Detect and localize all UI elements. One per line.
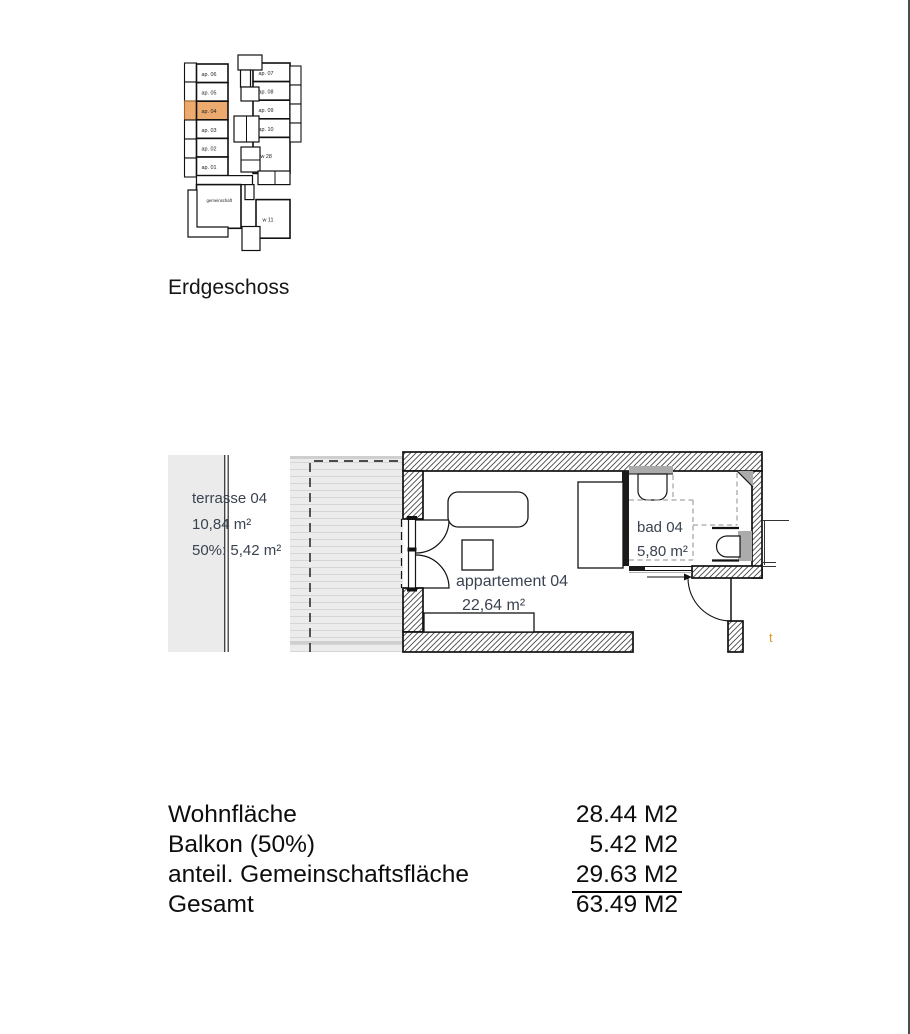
terrace-area-label: 10,84 m² bbox=[192, 516, 251, 533]
unit-label: w 11 bbox=[262, 218, 274, 224]
wall-corridor-strip bbox=[692, 566, 762, 578]
summary-row-gemeinschaftsflaeche: anteil. Gemeinschaftsfläche 29.63 M2 bbox=[168, 860, 678, 890]
sink bbox=[638, 474, 667, 500]
terrace-door-frame bbox=[409, 519, 416, 588]
unit-label: ap. 07 bbox=[259, 71, 274, 77]
summary-label: anteil. Gemeinschaftsfläche bbox=[168, 860, 469, 890]
wall-left-upper bbox=[403, 471, 423, 519]
summary-label: Balkon (50%) bbox=[168, 830, 315, 860]
terrace-edge-band bbox=[290, 456, 403, 459]
balcony-box bbox=[185, 158, 197, 177]
unit-label: ap. 09 bbox=[259, 108, 274, 114]
unit-label: ap. 01 bbox=[202, 165, 217, 171]
wall-bath-bottom-segment bbox=[629, 566, 645, 571]
balcony-box bbox=[185, 120, 197, 139]
site-map: ap. 06 ap. 05 ap. 04 ap. 03 ap. 02 ap. 0… bbox=[180, 50, 305, 260]
furniture-counter bbox=[424, 613, 534, 632]
core-top-box bbox=[238, 55, 262, 70]
unit-label: ap. 05 bbox=[202, 91, 217, 97]
bathroom-name-label: bad 04 bbox=[637, 519, 683, 536]
hall-band bbox=[197, 176, 253, 185]
wall-bottom bbox=[403, 632, 633, 652]
toilet bbox=[717, 536, 741, 557]
balcony-box bbox=[290, 104, 301, 123]
summary-value: 5.42 M2 bbox=[589, 830, 678, 860]
terrace-half-area-label: 50%: 5,42 m² bbox=[192, 542, 281, 559]
wall-top bbox=[403, 452, 762, 471]
balcony-box-highlight bbox=[185, 101, 197, 120]
floor-title: Erdgeschoss bbox=[168, 276, 289, 300]
furniture-couch bbox=[448, 492, 528, 527]
terrace-door-cap bbox=[407, 588, 417, 592]
unit-label: w 28 bbox=[260, 154, 272, 160]
terrace-door-handle bbox=[408, 548, 417, 552]
summary-row-balkon: Balkon (50%) 5.42 M2 bbox=[168, 830, 678, 860]
summary-value: 63.49 M2 bbox=[576, 890, 678, 920]
unit-label: ap. 02 bbox=[202, 146, 217, 152]
unit-label: gemeinschaft bbox=[207, 198, 233, 203]
unit-label-highlighted: ap. 04 bbox=[202, 109, 217, 115]
unit-label: ap. 10 bbox=[259, 127, 274, 133]
summary-value-underlined: 29.63 M2 bbox=[572, 860, 682, 893]
summary-label: Wohnfläche bbox=[168, 800, 297, 830]
summary-row-gesamt: Gesamt 63.49 M2 bbox=[168, 890, 678, 920]
unit-label: ap. 06 bbox=[202, 72, 217, 78]
furniture-table bbox=[462, 540, 493, 570]
bottom-protrusion bbox=[242, 227, 260, 251]
plan-sheet: ap. 06 ap. 05 ap. 04 ap. 03 ap. 02 ap. 0… bbox=[0, 0, 910, 1034]
unit-label: ap. 03 bbox=[202, 128, 217, 134]
door-swing-arc bbox=[416, 520, 449, 553]
terrace-deck bbox=[290, 456, 403, 652]
balcony-box bbox=[185, 63, 197, 82]
unit-label: ap. 08 bbox=[259, 90, 274, 96]
balcony-box bbox=[290, 85, 301, 104]
wall-left-lower bbox=[403, 588, 423, 632]
summary-label: Gesamt bbox=[168, 890, 254, 920]
core-box bbox=[241, 87, 259, 101]
wall-bath-right bbox=[752, 471, 762, 578]
wall-bottom-right-chunk bbox=[728, 621, 743, 652]
area-summary-table: Wohnfläche 28.44 M2 Balkon (50%) 5.42 M2… bbox=[168, 800, 678, 920]
door-swing-arc bbox=[416, 555, 449, 588]
summary-value: 28.44 M2 bbox=[576, 800, 678, 830]
storage-boxes bbox=[258, 171, 290, 185]
terrace-edge-band bbox=[290, 641, 403, 644]
clipped-edge-label: t bbox=[769, 630, 773, 645]
bath-wall-gray-band bbox=[629, 466, 673, 474]
balcony-box bbox=[185, 82, 197, 101]
summary-row-wohnflaeche: Wohnfläche 28.44 M2 bbox=[168, 800, 678, 830]
balcony-box bbox=[290, 123, 301, 142]
apartment-name-label: appartement 04 bbox=[456, 573, 568, 590]
room-gemeinschaft bbox=[197, 185, 242, 229]
core-neck bbox=[241, 70, 251, 87]
floor-plan: terrasse 04 10,84 m² 50%: 5,42 m² appart… bbox=[160, 440, 810, 670]
balcony-box bbox=[290, 66, 301, 85]
entry-door-swing-arc bbox=[688, 578, 731, 621]
terrace-door-cap bbox=[407, 516, 417, 520]
apartment-area-label: 22,64 m² bbox=[462, 597, 526, 614]
terrace-name-label: terrasse 04 bbox=[192, 490, 267, 507]
connector bbox=[245, 185, 254, 200]
balcony-box bbox=[185, 139, 197, 158]
furniture-wardrobe bbox=[578, 482, 623, 568]
bathroom-area-label: 5,80 m² bbox=[637, 543, 688, 560]
